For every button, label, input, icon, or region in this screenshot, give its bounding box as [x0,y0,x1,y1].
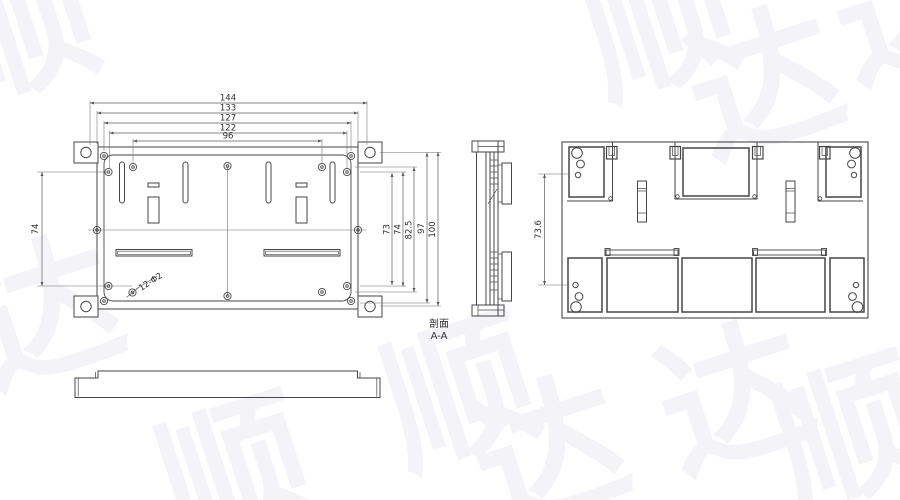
dim-label-74-left: 74 [31,224,41,235]
dim-label-73: 73 [383,224,393,235]
section-label: 剖面 A-A [429,317,449,342]
drawing-svg: 144 133 127 122 96 74 73 74 82.5 97 100 … [0,0,900,500]
dim-label-73-6: 73.6 [534,220,544,239]
section-bottom-rib [502,252,512,301]
section-top-rib [502,163,512,204]
section-subtitle: A-A [431,331,448,342]
hole-callout-label: 12-Φ2 [137,271,164,294]
section-title: 剖面 [429,317,449,330]
dim-label-96: 96 [223,132,234,142]
rear-bottom-pockets [568,258,864,312]
dim-label-127: 127 [220,114,236,124]
dim-label-100: 100 [428,221,438,237]
blueprint-canvas: 顺 顺 达 达 达 顺 达 顺 达 顺 [0,0,900,500]
section-view [472,141,512,316]
mounting-ears [74,142,382,317]
rear-pocket-center-frame [675,142,757,199]
rear-view [562,142,868,318]
bottom-profile-view [75,371,380,398]
dimension-lines [42,103,438,306]
bottom-lips [605,249,827,256]
horizontal-slots [116,250,340,257]
dim-label-144: 144 [220,94,236,104]
rear-pocket-top-right [826,147,861,197]
section-bottom-cap [472,305,504,316]
dim-label-74-right: 74 [394,224,404,235]
dim-label-133: 133 [220,104,236,114]
rear-pocket-top-center [683,148,749,196]
snap-pins [638,181,796,222]
bottom-profile-outline [75,371,380,398]
rear-body-outline [562,142,868,318]
front-dimensions: 144 133 127 122 96 74 73 74 82.5 97 100 … [31,94,441,307]
rear-dimension: 73.6 [534,174,570,285]
extension-lines [37,101,441,306]
front-view [74,142,382,317]
dim-label-82-5: 82.5 [405,221,415,240]
dim-label-97: 97 [417,223,427,234]
centerlines [88,166,366,296]
rear-pocket-top-left [569,147,604,197]
